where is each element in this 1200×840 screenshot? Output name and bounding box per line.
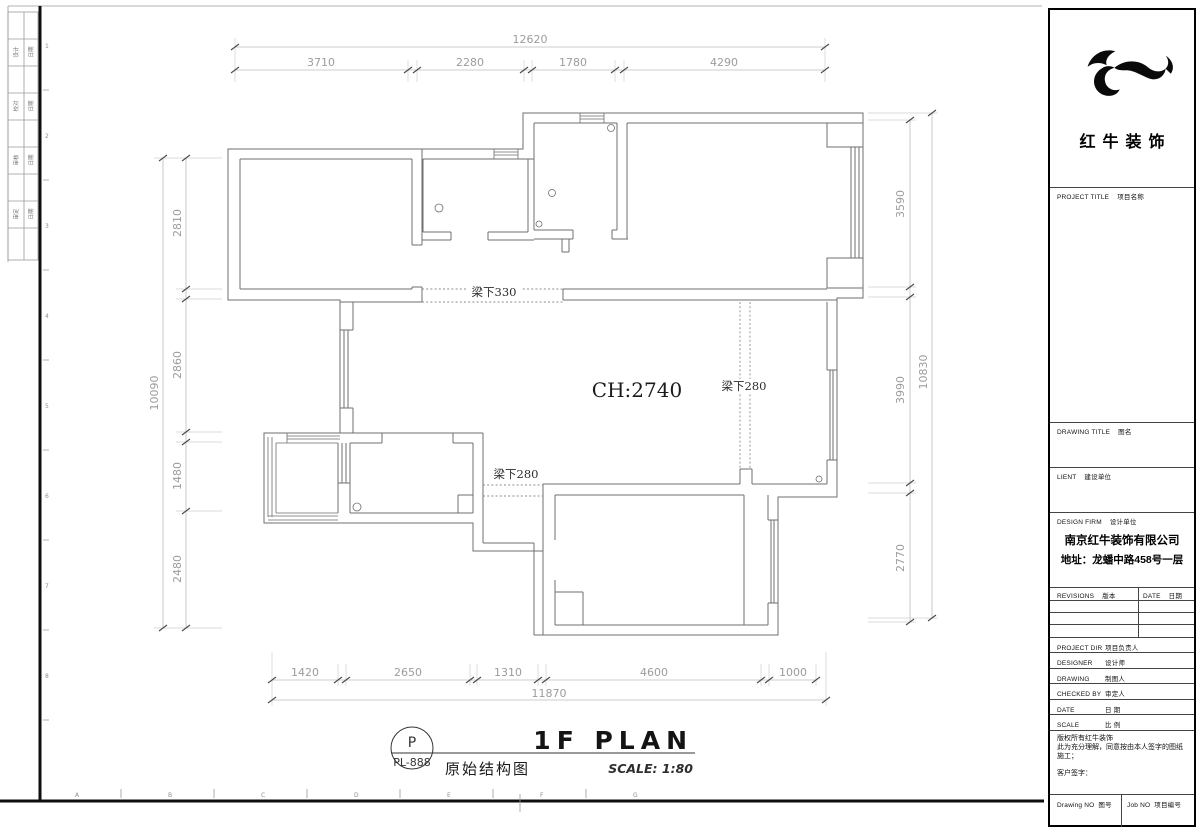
beam-label-280-right: 梁下280 [722,379,767,393]
svg-text:2650: 2650 [394,666,422,679]
svg-text:E: E [447,792,451,799]
label-en: Job NO [1127,802,1150,809]
firm-address: 地址：龙蟠中路458号一层 [1050,552,1194,567]
divider [1050,512,1194,513]
stamp-label: 日期 [28,208,35,220]
svg-text:C: C [261,792,265,799]
svg-text:1: 1 [45,43,49,50]
exterior-walls [228,113,863,635]
room-living [617,123,859,258]
divider [1050,422,1194,423]
divider [1050,668,1194,669]
label-en: DATE [1143,593,1161,600]
label-cn: 日 期 [1105,707,1120,714]
svg-text:D: D [354,792,359,799]
divider [1050,587,1194,588]
design-firm-label: DESIGN FIRM设计单位 [1057,516,1137,526]
svg-text:2770: 2770 [894,544,907,572]
label-cn: 版本 [1102,593,1115,600]
svg-text:A: A [75,792,80,799]
wall-dining-right [827,302,837,484]
svg-text:1420: 1420 [291,666,319,679]
svg-text:3990: 3990 [894,376,907,404]
room-bath-tall [534,123,628,252]
stamp-label: 日期 [28,46,35,58]
table-divider [1121,794,1122,827]
field-row: DATE日 期 [1057,704,1120,714]
divider [1050,187,1194,188]
label-cn: 日期 [1169,593,1182,600]
grid-row-numbers: 1 2 3 4 5 6 7 8 [43,43,49,720]
svg-text:7: 7 [45,583,49,590]
note-line: 此为充分理解，同意按由本人签字的图纸施工； [1057,743,1189,761]
field-row: CHECKED BY审定人 [1057,688,1125,698]
floorplan: 梁下330 梁下280 梁下280 CH:2740 [228,113,863,635]
label-en: DESIGNER [1057,660,1105,667]
drawing-canvas: 设计 日期 校对 日期 审核 日期 审定 日期 1 2 3 4 5 6 7 8 … [0,0,1200,840]
label-cn: 比 例 [1105,722,1120,729]
field-row: DRAWING制图人 [1057,673,1125,683]
cad-floorplan-page: 设计 日期 校对 日期 审核 日期 审定 日期 1 2 3 4 5 6 7 8 … [0,0,1200,840]
brand-name: 红牛装饰 [1050,128,1194,152]
svg-text:4: 4 [45,313,49,320]
beam-lines [422,289,750,496]
dim-left: 10090 2810 2860 1480 2480 [148,155,222,631]
note-line: 版权所有红牛装饰 [1057,734,1189,743]
svg-text:4290: 4290 [710,56,738,69]
dim-bottom: 1420 2650 1310 4600 1000 11870 [268,652,830,706]
field-row: PROJECT DIR项目负责人 [1057,642,1139,652]
divider [1050,794,1194,795]
svg-text:3590: 3590 [894,190,907,218]
sheet-number: PL-888 [393,756,431,769]
svg-text:3710: 3710 [307,56,335,69]
ceiling-height-label: CH:2740 [592,378,682,402]
label-cn: 项目编号 [1154,802,1181,809]
table-divider [1138,587,1139,637]
wall-dining-left [340,302,422,433]
label-cn: 项目名称 [1117,194,1144,201]
drawing-no-label: Drawing NO图号 [1057,799,1112,809]
divider [1050,714,1194,715]
label-cn: 图号 [1098,802,1111,809]
divider [1050,624,1194,625]
svg-text:G: G [633,792,638,799]
window-top-2 [580,113,604,123]
stamp-label: 设计 [12,46,20,58]
svg-text:2280: 2280 [456,56,484,69]
divider [1050,683,1194,684]
label-en: DATE [1057,707,1105,714]
svg-text:5: 5 [45,403,49,410]
wall-pier [827,258,863,288]
svg-text:10090: 10090 [148,376,161,411]
svg-text:1000: 1000 [779,666,807,679]
window-top-1 [494,149,518,159]
divider [1050,699,1194,700]
wall-pier [827,123,863,147]
dim-right: 3590 3990 2770 10830 [868,110,938,625]
stamp-label: 审核 [12,154,20,166]
label-en: PROJECT TITLE [1057,194,1109,201]
label-en: CHECKED BY [1057,691,1105,698]
svg-text:2810: 2810 [171,209,184,237]
label-en: Drawing NO [1057,802,1094,809]
project-title-label: PROJECT TITLE项目名称 [1057,191,1144,201]
beam-label-280-left: 梁下280 [494,467,539,481]
signature-strip: 设计 日期 校对 日期 审核 日期 审定 日期 [8,12,38,260]
dim-top: 12620 3710 2280 1780 4290 [231,33,829,82]
svg-text:1480: 1480 [171,462,184,490]
grid-col-letters: A B C D E F G [75,789,638,799]
label-cn: 制图人 [1105,676,1125,683]
drawing-title-label: DRAWING TITLE图名 [1057,426,1132,436]
svg-text:12620: 12620 [513,33,548,46]
wall-corridor [483,433,543,635]
room-balcony [268,433,340,520]
room-kitchen [338,433,483,513]
label-en: LIENT [1057,474,1076,481]
label-cn: 设计单位 [1110,519,1137,526]
divider [1050,612,1194,613]
label-en: REVISIONS [1057,593,1094,600]
room-bath-mid [422,159,534,240]
company-logo [1072,42,1176,116]
stamp-label: 日期 [28,154,35,166]
field-row: SCALE比 例 [1057,719,1120,729]
divider [1050,600,1194,601]
svg-text:11870: 11870 [532,687,567,700]
room-bedroom-topleft [240,149,422,302]
label-cn: 项目负责人 [1105,645,1139,652]
svg-text:10830: 10830 [917,355,930,390]
svg-text:1780: 1780 [559,56,587,69]
rev-date-label: DATE日期 [1143,590,1182,600]
client-label: LIENT建设单位 [1057,471,1111,481]
client-signature-label: 客户签字： [1057,769,1189,778]
label-en: DRAWING TITLE [1057,429,1110,436]
bull-icon [1088,50,1173,96]
stamp-label: 校对 [12,100,20,112]
field-row: DESIGNER设计师 [1057,657,1125,667]
divider [1050,730,1194,731]
copyright-notes: 版权所有红牛装饰 此为充分理解，同意按由本人签字的图纸施工； 客户签字： [1057,734,1189,778]
wall-living-bottom [563,289,837,300]
label-cn: 建设单位 [1084,474,1111,481]
divider [1050,652,1194,653]
label-cn: 图名 [1118,429,1131,436]
sheet-code: P [408,735,416,751]
svg-text:2480: 2480 [171,555,184,583]
plan-title: 1F PLAN [533,726,693,755]
divider [1050,467,1194,468]
drawing-title-block: P PL-888 1F PLAN 原始结构图 SCALE: 1:80 [391,726,695,778]
firm-name: 南京红牛装饰有限公司 [1050,532,1194,548]
stamp-label: 审定 [12,208,20,220]
svg-text:F: F [540,792,544,799]
svg-text:1310: 1310 [494,666,522,679]
svg-text:B: B [168,792,172,799]
room-bedroom-bottomright [543,469,827,625]
plan-scale: SCALE: 1:80 [608,761,693,776]
revisions-label: REVISIONS版本 [1057,590,1116,600]
svg-text:8: 8 [45,673,49,680]
job-no-label: Job NO项目编号 [1127,799,1181,809]
divider [1050,637,1194,638]
label-en: SCALE [1057,722,1105,729]
svg-text:2: 2 [45,133,49,140]
stamp-label: 日期 [28,100,35,112]
svg-text:2860: 2860 [171,351,184,379]
beam-label-330: 梁下330 [472,285,517,299]
label-en: PROJECT DIR [1057,645,1105,652]
svg-text:3: 3 [45,223,49,230]
svg-text:4600: 4600 [640,666,668,679]
label-cn: 设计师 [1105,660,1125,667]
label-en: DRAWING [1057,676,1105,683]
svg-text:6: 6 [45,493,49,500]
label-en: DESIGN FIRM [1057,519,1102,526]
titleblock-sidebar: 红牛装饰 PROJECT TITLE项目名称 DRAWING TITLE图名 L… [1048,8,1196,827]
label-cn: 审定人 [1105,691,1125,698]
plan-subtitle: 原始结构图 [445,760,530,778]
